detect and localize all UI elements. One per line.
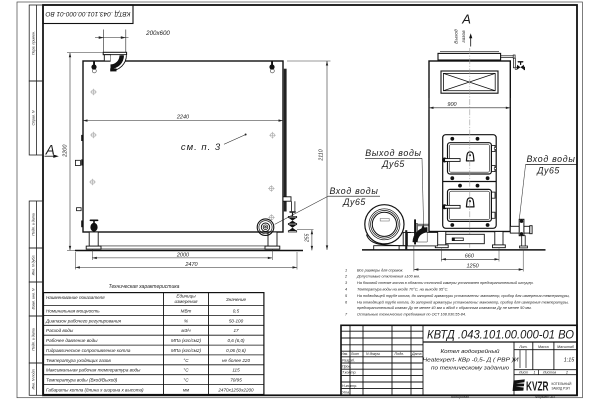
- svg-text:Максимальная рабочая температу: Максимальная рабочая температура воды: [46, 368, 141, 373]
- svg-text:°С: °С: [183, 358, 189, 363]
- svg-text:660: 660: [465, 254, 475, 260]
- svg-text:Температура воды (Вход/Выход): Температура воды (Вход/Выход): [46, 378, 118, 383]
- svg-text:2470: 2470: [184, 262, 198, 268]
- svg-text:Наименование показателя: Наименование показателя: [46, 295, 105, 300]
- svg-text:°С: °С: [183, 368, 189, 373]
- svg-text:Единицы: Единицы: [176, 293, 196, 298]
- svg-text:Изм.: Изм.: [341, 352, 348, 356]
- svg-text:не более 220: не более 220: [222, 358, 250, 363]
- svg-text:Лист: Лист: [518, 371, 528, 375]
- svg-text:Подп.: Подп.: [395, 352, 405, 356]
- svg-text:Утв.: Утв.: [342, 390, 350, 394]
- svg-text:Ду65: Ду65: [381, 159, 404, 169]
- svg-text:измерения: измерения: [175, 299, 199, 304]
- svg-text:%: %: [184, 318, 188, 323]
- svg-text:2: 2: [565, 371, 568, 375]
- svg-text:0,6 (6,0): 0,6 (6,0): [227, 338, 245, 343]
- svg-text:мм: мм: [183, 388, 190, 393]
- svg-text:2110: 2110: [319, 149, 325, 161]
- svg-text:Инв. N подл.: Инв. N подл.: [32, 368, 36, 389]
- svg-text:0,5: 0,5: [233, 308, 240, 313]
- svg-text:2200: 2200: [63, 144, 69, 158]
- svg-text:70/95: 70/95: [230, 378, 242, 383]
- svg-text:Ду65: Ду65: [536, 166, 559, 176]
- svg-text:На боковой стенке котла в обла: На боковой стенке котла в области топочн…: [357, 281, 534, 285]
- svg-text:2470х1250х2200: 2470х1250х2200: [217, 388, 254, 393]
- svg-text:Вход воды: Вход воды: [330, 186, 379, 196]
- svg-text:Выход: Выход: [453, 29, 459, 44]
- svg-text:Дата: Дата: [411, 352, 421, 356]
- svg-text:см. п. 3: см. п. 3: [181, 142, 221, 153]
- svg-text:Т.контр.: Т.контр.: [342, 371, 357, 375]
- svg-text:Вход воды: Вход воды: [527, 154, 576, 164]
- svg-text:Разраб.: Разраб.: [342, 358, 355, 362]
- svg-text:Пров.: Пров.: [342, 365, 351, 369]
- svg-text:Подп. и дата: Подп. и дата: [32, 213, 36, 236]
- svg-text:0,06 (0,6): 0,06 (0,6): [226, 348, 246, 353]
- svg-text:115: 115: [232, 368, 240, 373]
- svg-text:ЗАВОД РЭП: ЗАВОД РЭП: [552, 386, 571, 390]
- svg-text:Номинальная мощность: Номинальная мощность: [46, 308, 100, 313]
- svg-text:Гидравлическое сопротивление к: Гидравлическое сопротивление котла: [46, 348, 131, 353]
- svg-text:КВТД .043.101.00.000-01 ВО: КВТД .043.101.00.000-01 ВО: [46, 10, 131, 17]
- svg-text:KVZR: KVZR: [526, 379, 549, 393]
- svg-text:Лист: Лист: [350, 352, 360, 356]
- svg-text:Ду65: Ду65: [342, 197, 365, 207]
- svg-text:Масса: Масса: [538, 345, 549, 349]
- svg-text:Диапазон рабочего регулировани: Диапазон рабочего регулирования: [45, 318, 122, 323]
- svg-text:Справ. N: Справ. N: [32, 110, 36, 125]
- svg-text:1250: 1250: [466, 264, 479, 270]
- svg-text:Техническая характеристика: Техническая характеристика: [109, 284, 180, 290]
- svg-text:4: 4: [345, 288, 347, 292]
- svg-text:50-100: 50-100: [229, 318, 244, 323]
- svg-text:Инв. N дубл.: Инв. N дубл.: [32, 255, 36, 276]
- svg-text:Допустимые отклонения ±100 мм: Допустимые отклонения ±100 мм.: [356, 275, 420, 279]
- svg-text:по техническому заданию: по техническому заданию: [431, 366, 510, 372]
- svg-text:Heatexpert- КВр -0,5- Д ( РВР: Heatexpert- КВр -0,5- Д ( РВР )И: [423, 357, 519, 363]
- svg-text:1: 1: [534, 371, 536, 375]
- svg-text:Котел водогрейный: Котел водогрейный: [441, 348, 500, 355]
- svg-text:Копировал: Копировал: [451, 395, 469, 399]
- svg-text:Подп. и дата: Подп. и дата: [32, 328, 36, 351]
- svg-text:Значение: Значение: [226, 297, 247, 302]
- svg-text:Расход воды: Расход воды: [46, 328, 74, 333]
- svg-text:Н.контр.: Н.контр.: [342, 384, 357, 388]
- svg-text:200х600: 200х600: [145, 30, 170, 37]
- svg-text:КОТЕЛЬНЫЙ: КОТЕЛЬНЫЙ: [552, 382, 573, 386]
- svg-text:Масштаб: Масштаб: [557, 345, 575, 349]
- svg-text:17: 17: [233, 328, 239, 333]
- svg-text:Лит.: Лит.: [518, 345, 527, 349]
- svg-text:Габариты котла (длина х ширина: Габариты котла (длина х ширина х высота): [46, 388, 144, 393]
- svg-text:А: А: [461, 12, 471, 27]
- svg-text:МВт: МВт: [181, 308, 192, 313]
- svg-text:N докум.: N докум.: [366, 352, 381, 356]
- svg-text:м3/ч: м3/ч: [181, 328, 191, 333]
- svg-text:1: 1: [345, 268, 347, 272]
- svg-text:предохранительный клапан Ду н: предохранительный клапан Ду не менее 40 …: [357, 306, 532, 310]
- svg-text:Листов: Листов: [542, 371, 556, 375]
- svg-text:900: 900: [447, 102, 457, 108]
- svg-text:255: 255: [304, 233, 310, 243]
- svg-text:Температура уходящих газов: Температура уходящих газов: [46, 358, 111, 363]
- svg-text:Перв. примен.: Перв. примен.: [32, 31, 36, 55]
- svg-text:2240: 2240: [176, 115, 190, 121]
- svg-text:Формат А3: Формат А3: [535, 395, 555, 399]
- svg-text:КВТД .043.101.00.000-01 ВО: КВТД .043.101.00.000-01 ВО: [427, 327, 574, 341]
- svg-text:1:15: 1:15: [564, 357, 575, 363]
- svg-text:Взам. инв. N: Взам. инв. N: [32, 288, 36, 309]
- svg-text:Все размеры для справок.: Все размеры для справок.: [357, 268, 404, 272]
- svg-text:МПа (кгс/см2): МПа (кгс/см2): [171, 348, 201, 353]
- svg-text:Остальные технические требован: Остальные технические требования по ОСТ …: [357, 312, 466, 316]
- svg-text:Выход воды: Выход воды: [365, 148, 421, 158]
- svg-text:МПа (кгс/см2): МПа (кгс/см2): [171, 338, 201, 343]
- svg-text:На отводящей трубе котла, до з: На отводящей трубе котла, до запорной ар…: [357, 300, 569, 304]
- svg-text:2000: 2000: [176, 252, 190, 258]
- svg-text:газов: газов: [462, 30, 467, 43]
- svg-text:Температура воды на входе 70°: Температура воды на входе 70°С, на выход…: [357, 288, 448, 292]
- svg-text:На подводящей трубе котла, д: На подводящей трубе котла, до запорной а…: [357, 294, 570, 298]
- svg-text:°С: °С: [183, 378, 189, 383]
- svg-text:Рабочее давление воды: Рабочее давление воды: [46, 338, 98, 343]
